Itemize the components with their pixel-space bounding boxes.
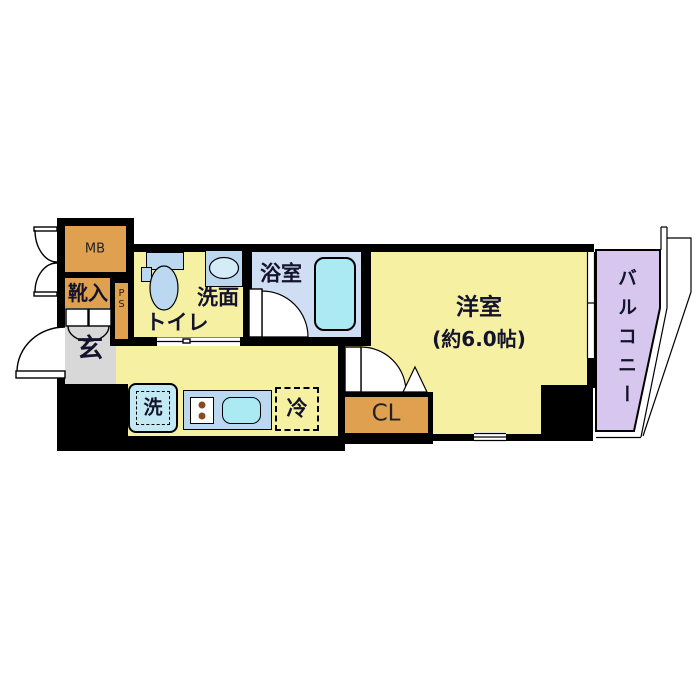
fridge-label: 冷 (287, 399, 308, 420)
wall-top-left (57, 218, 134, 226)
mb-door-leaf-bottom (34, 292, 57, 296)
wall-below-window (587, 358, 595, 388)
stove-icon (190, 397, 214, 424)
entrance-door-arc (17, 327, 65, 371)
kitchen-sink-icon (222, 397, 261, 424)
building-outline-lines (643, 238, 691, 436)
wall-doorframe-strip (338, 346, 345, 392)
bathroom-label: 浴室 (260, 264, 302, 285)
wall-bath-room (361, 252, 371, 337)
window-right-glass (587, 252, 595, 358)
washer-label: 洗 (143, 399, 162, 418)
closet-label: CL (372, 403, 401, 426)
washbasin-unit (205, 250, 243, 287)
mb-label: MB (85, 243, 105, 256)
pipe-space-label: PS (116, 288, 126, 310)
western-room-size-label: (約6.0帖) (432, 329, 526, 349)
shoe-cabinet-label: 靴入 (68, 283, 108, 303)
window-right-lines (587, 252, 595, 358)
wall-washroom-bath (243, 252, 252, 337)
bathtub-icon (314, 257, 356, 331)
entrance-label: 玄 (77, 336, 103, 362)
washroom-label: 洗面 (197, 288, 239, 309)
wall-bottom-left-run (57, 436, 345, 451)
floor-plan-canvas: MB 靴入 PS トイレ 洗面 浴室 玄 洗 冷 CL 洋室 (約6.0帖) バ… (0, 0, 700, 700)
toilet-side-box (141, 267, 152, 282)
mb-door-arc-bottom (35, 263, 57, 292)
western-room-label: 洋室 (456, 297, 502, 320)
balcony-label: バルコニー (616, 268, 635, 413)
mb-door-arc-top (35, 230, 57, 262)
wall-right-block (541, 385, 593, 441)
wall-washroom-bottom (110, 337, 371, 346)
wall-top-main (127, 244, 594, 252)
mb-door-leaf-top (34, 227, 57, 231)
toilet-label: トイレ (146, 313, 209, 334)
